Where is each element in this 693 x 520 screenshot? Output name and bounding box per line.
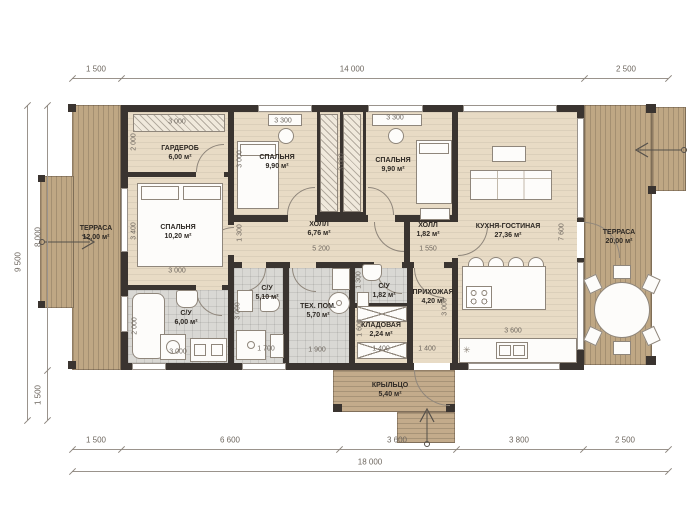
sofa: [470, 170, 552, 200]
wall-int: [234, 215, 288, 222]
deck-post: [68, 361, 76, 369]
deck-post: [38, 301, 45, 308]
room-label-bedroom1: СПАЛЬНЯ9,90 м²: [259, 153, 294, 171]
window: [121, 188, 128, 252]
chair: [388, 128, 404, 144]
dim-text: 3 000: [235, 302, 242, 320]
pillow: [419, 143, 449, 154]
room-label-kitchen: КУХНЯ-ГОСТИНАЯ27,36 м²: [476, 222, 541, 240]
dim-text: 3 300: [274, 118, 292, 125]
dim-text: 8 000: [34, 227, 43, 247]
dim-text: 3 300: [386, 115, 404, 122]
wall-int: [363, 112, 366, 215]
deck-post: [646, 104, 656, 113]
bar-stool: [508, 257, 524, 266]
wall-int: [234, 262, 242, 268]
window: [242, 363, 286, 370]
wall-int: [224, 172, 228, 177]
dim-text: 3 800: [509, 436, 529, 445]
dim-text: 1 300: [237, 224, 244, 242]
dim-text: 5 200: [312, 246, 330, 253]
deck-post: [68, 104, 76, 112]
closet-bedroom1: [320, 114, 338, 212]
dim-text: 1 900: [308, 347, 326, 354]
wall-int: [452, 258, 458, 363]
wall-int: [228, 255, 234, 363]
room-label-su6: С/У6,00 м²: [174, 309, 197, 327]
dim-text: 1 500: [86, 65, 106, 74]
window: [577, 118, 584, 218]
sink-basin: [513, 345, 525, 356]
cooktop: [466, 286, 492, 308]
room-label-terrace-right: ТЕРРАСА20,00 м²: [603, 228, 635, 246]
deck-post: [648, 186, 656, 194]
dim-text: 3 600: [504, 328, 522, 335]
sink-basin: [194, 344, 206, 356]
wall-int: [317, 112, 320, 215]
room-label-su182: С/У1,82 м²: [372, 282, 395, 300]
toilet: [176, 290, 198, 308]
dim-text: 3 000: [442, 298, 449, 316]
deck-post: [333, 404, 342, 412]
wall-int: [222, 285, 228, 290]
dim-text: 3 000: [237, 150, 244, 168]
dim-text: 3 000: [339, 153, 346, 171]
room-label-bedroom-main: СПАЛЬНЯ10,20 м²: [160, 223, 195, 241]
water-heater-core: [336, 300, 342, 306]
dim-text: 1 700: [257, 346, 275, 353]
wall-int: [452, 112, 458, 222]
window: [463, 105, 557, 112]
room-label-hall: ХОЛЛ6,76 м²: [307, 220, 330, 238]
pillow: [141, 186, 179, 200]
dim-text: 2 500: [616, 65, 636, 74]
window: [577, 262, 584, 350]
sink-basin: [499, 345, 511, 356]
wall-int: [444, 262, 452, 268]
dim-text: 7 600: [559, 223, 566, 241]
wall-int: [407, 268, 413, 363]
dim-text: 1 500: [34, 385, 43, 405]
dim-line-left-inner: [47, 105, 48, 420]
deck-post: [646, 356, 656, 365]
dim-line-top: [72, 78, 668, 79]
toilet: [362, 264, 382, 281]
dim-text: 3 000: [168, 119, 186, 126]
round-table: [594, 282, 650, 338]
chair: [613, 265, 631, 279]
window: [121, 296, 128, 332]
bar-stool: [488, 257, 504, 266]
dim-text: 1 500: [86, 436, 106, 445]
storage-shelf: [357, 306, 407, 322]
floor-plan: ✳ ТЕРРАСА12,00 м² ГАРДЕРОБ6,00 м² СПАЛЬН…: [0, 0, 693, 520]
wall-int: [128, 172, 196, 177]
dim-text: 1 600: [357, 319, 364, 337]
boiler: [332, 268, 350, 290]
entrance-arrow-porch: [417, 404, 437, 448]
dim-text: 14 000: [340, 65, 364, 74]
window: [258, 105, 312, 112]
deck-post: [38, 175, 45, 182]
dim-text: 3 000: [168, 268, 186, 275]
room-label-hall2: ХОЛЛ1,82 м²: [416, 221, 439, 239]
room-label-su510: С/У5,10 м²: [255, 284, 278, 302]
room-label-porch: КРЫЛЬЦО5,40 м²: [372, 381, 408, 399]
room-label-bedroom2: СПАЛЬНЯ9,90 м²: [375, 156, 410, 174]
dim-text: 18 000: [358, 458, 382, 467]
dim-text: 1 550: [419, 246, 437, 253]
dim-tick: [44, 417, 51, 424]
dim-text: 3 400: [131, 222, 138, 240]
bar-stool: [528, 257, 544, 266]
bar-stool: [468, 257, 484, 266]
dim-line-total: [72, 471, 668, 472]
closet-bedroom2: [343, 114, 361, 212]
tv-stand: [492, 146, 526, 162]
wall-int: [404, 222, 410, 262]
dim-line-bottom: [72, 449, 668, 450]
entrance-arrow-right: [628, 140, 690, 160]
room-label-storage: КЛАДОВАЯ2,24 м²: [361, 321, 401, 339]
sink-basin: [211, 344, 223, 356]
chair: [613, 341, 631, 355]
dim-text: 1 400: [372, 346, 390, 353]
shower-drain: [247, 341, 255, 349]
dim-text: 2 500: [615, 436, 635, 445]
room-label-tech: ТЕХ. ПОМ.5,70 м²: [300, 302, 336, 320]
dim-text: 2 000: [131, 133, 138, 151]
dim-line-left-outer: [27, 105, 28, 420]
pillow: [183, 186, 221, 200]
dim-text: 1 300: [356, 271, 363, 289]
wall-int: [228, 112, 234, 225]
dim-text: 6 600: [220, 436, 240, 445]
dim-tick: [665, 446, 672, 453]
bed-bench: [420, 208, 450, 220]
dim-text: 3 000: [169, 349, 187, 356]
window: [368, 105, 423, 112]
dim-text: 1 400: [418, 346, 436, 353]
star-symbol: ✳: [463, 345, 471, 356]
window: [468, 363, 560, 370]
chair: [278, 128, 294, 144]
dim-tick: [665, 468, 672, 475]
dim-text: 3 600: [387, 436, 407, 445]
room-label-terrace-left: ТЕРРАСА12,00 м²: [80, 224, 112, 242]
dim-tick: [665, 75, 672, 82]
dim-text: 9 500: [14, 252, 23, 272]
window: [132, 363, 166, 370]
dim-tick: [24, 417, 31, 424]
room-label-wardrobe: ГАРДЕРОБ6,00 м²: [161, 144, 199, 162]
dim-text: 2 000: [132, 317, 139, 335]
